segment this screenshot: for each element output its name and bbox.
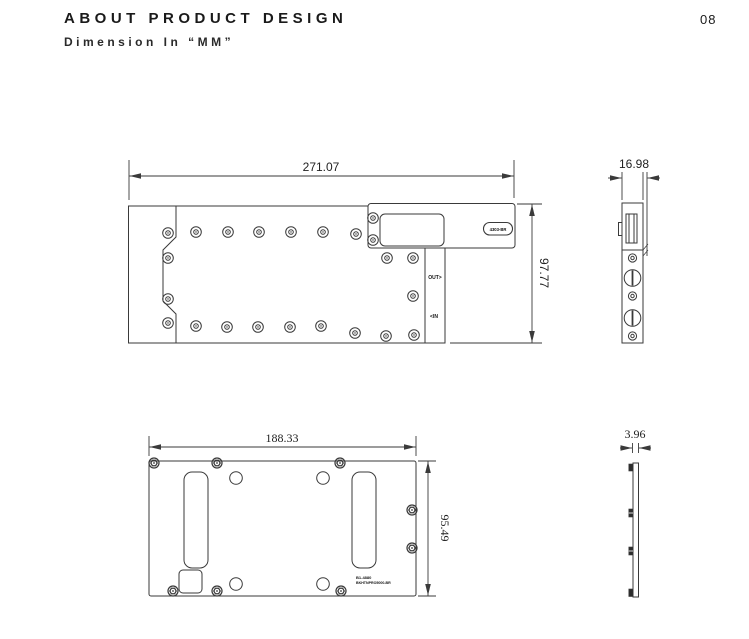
terminal-block	[368, 204, 515, 249]
dimension-thickness-top-value: 16.98	[619, 157, 649, 171]
side-view-bottom: 3.96	[620, 427, 651, 597]
dimension-thickness-bottom-value: 3.96	[625, 427, 646, 441]
product-code-line2: BKHTNPRO5000-BR	[356, 581, 391, 585]
document-page: ABOUT PRODUCT DESIGN Dimension In “MM” 0…	[0, 0, 749, 639]
side-body-bottom	[633, 463, 639, 597]
side-view-top: 16.98	[608, 157, 660, 343]
side-screw-tabs	[629, 464, 633, 597]
dimension-height-top-value: 97.77	[537, 258, 551, 288]
front-view-top: 4303-BR OUT> <IN 271.07	[129, 160, 552, 343]
side-tab	[619, 223, 623, 236]
front-view-bottom: B1-4880 BKHTNPRO5000-BR 188.33 95.49	[149, 431, 452, 596]
in-port-label: <IN	[430, 314, 438, 320]
dimension-width-bottom-value: 188.33	[266, 431, 299, 445]
dimension-height-bottom-value: 95.49	[438, 515, 452, 542]
dimension-height-bottom: 95.49	[418, 461, 452, 596]
model-tag-text: 4303-BR	[490, 227, 507, 232]
technical-drawing-canvas: 4303-BR OUT> <IN 271.07	[0, 0, 749, 639]
product-code-line1: B1-4880	[356, 575, 372, 580]
dimension-width-top: 271.07	[129, 160, 514, 200]
dimension-width-bottom: 188.33	[149, 431, 416, 456]
out-port-label: OUT>	[428, 275, 442, 281]
dimension-thickness-bottom: 3.96	[620, 427, 651, 453]
dimension-width-top-value: 271.07	[303, 160, 340, 174]
